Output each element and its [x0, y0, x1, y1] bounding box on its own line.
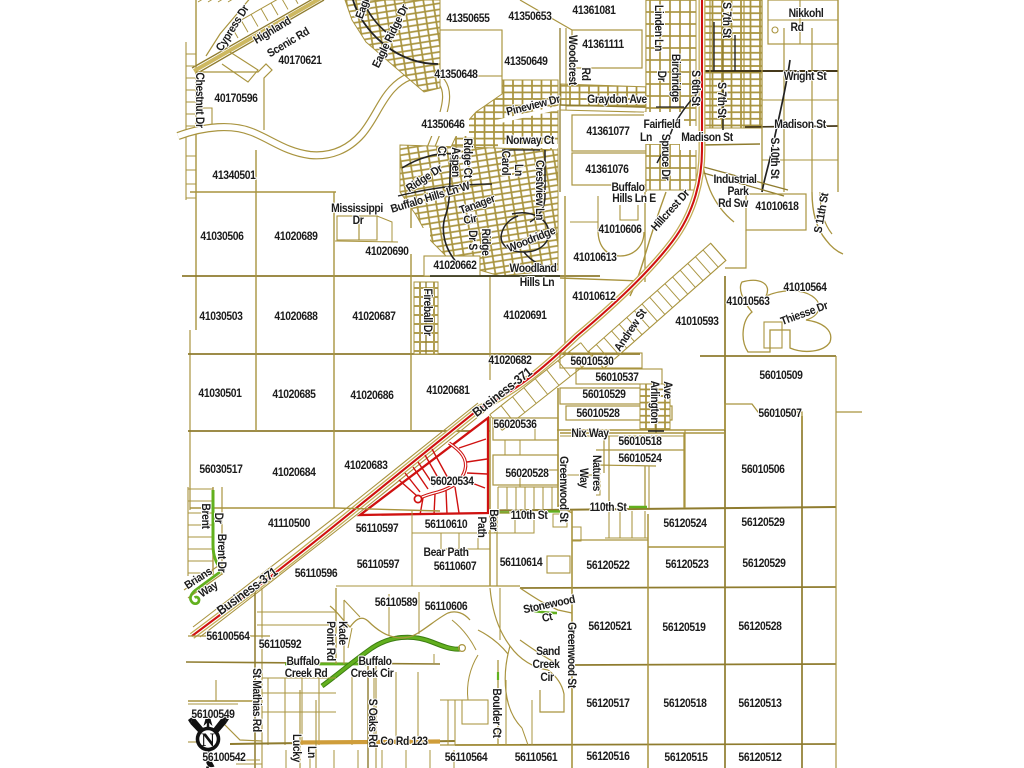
svg-text:56110561: 56110561: [515, 752, 558, 765]
svg-text:Rd: Rd: [790, 22, 803, 35]
svg-text:Park: Park: [727, 186, 749, 199]
svg-text:56110597: 56110597: [356, 523, 399, 536]
svg-text:Ln: Ln: [640, 132, 652, 145]
svg-text:Hills Ln E: Hills Ln E: [612, 193, 656, 206]
svg-text:41110500: 41110500: [268, 518, 310, 531]
svg-text:41010618: 41010618: [755, 201, 798, 214]
svg-text:Mississippi: Mississippi: [331, 203, 383, 216]
svg-text:56120515: 56120515: [664, 752, 707, 765]
svg-text:Creek: Creek: [533, 659, 561, 672]
svg-text:Hills Ln: Hills Ln: [520, 277, 555, 290]
svg-text:Buffalo: Buffalo: [286, 656, 320, 669]
svg-text:Ave: Ave: [661, 381, 674, 399]
svg-text:110th St: 110th St: [511, 510, 549, 523]
svg-text:41010613: 41010613: [573, 252, 616, 265]
svg-text:41350649: 41350649: [504, 56, 547, 69]
svg-text:41020686: 41020686: [350, 390, 393, 403]
svg-text:56110606: 56110606: [425, 601, 468, 614]
svg-text:56120517: 56120517: [586, 698, 629, 711]
svg-text:56120513: 56120513: [738, 698, 781, 711]
svg-text:56120522: 56120522: [586, 560, 629, 573]
svg-text:Carol: Carol: [499, 151, 512, 176]
svg-text:41030503: 41030503: [199, 311, 242, 324]
svg-text:56020528: 56020528: [505, 468, 548, 481]
svg-text:41020690: 41020690: [365, 246, 408, 259]
svg-text:56100564: 56100564: [206, 631, 250, 644]
svg-text:56010528: 56010528: [576, 408, 619, 421]
svg-text:41030506: 41030506: [200, 231, 243, 244]
svg-text:56020534: 56020534: [430, 476, 474, 489]
svg-text:Bear: Bear: [487, 509, 500, 532]
svg-text:Industrial: Industrial: [714, 174, 757, 187]
svg-text:41020681: 41020681: [426, 385, 469, 398]
svg-text:56100542: 56100542: [202, 752, 245, 765]
svg-text:41020688: 41020688: [274, 311, 317, 324]
svg-text:56110564: 56110564: [445, 752, 489, 765]
svg-text:41020685: 41020685: [272, 389, 315, 402]
svg-text:N: N: [201, 730, 215, 751]
svg-text:Dr: Dr: [212, 513, 225, 525]
svg-text:41010606: 41010606: [598, 224, 641, 237]
svg-text:56120528: 56120528: [738, 621, 781, 634]
svg-text:41010593: 41010593: [675, 316, 718, 329]
svg-text:S 7th St: S 7th St: [715, 82, 728, 118]
svg-text:Dr S: Dr S: [466, 230, 479, 250]
svg-text:S 7th St: S 7th St: [720, 2, 733, 38]
svg-text:Greenwood St: Greenwood St: [565, 622, 578, 689]
svg-text:Spruce Dr: Spruce Dr: [659, 134, 672, 181]
svg-text:41020689: 41020689: [274, 231, 317, 244]
svg-text:Ridge: Ridge: [479, 229, 492, 256]
svg-text:56120524: 56120524: [663, 518, 707, 531]
svg-text:41361076: 41361076: [585, 164, 628, 177]
svg-text:Sand: Sand: [536, 646, 560, 659]
svg-text:Wright St: Wright St: [784, 71, 827, 84]
svg-text:56120523: 56120523: [665, 559, 708, 572]
svg-text:56020536: 56020536: [493, 419, 536, 432]
svg-text:Madison St: Madison St: [774, 119, 826, 132]
svg-text:56110592: 56110592: [259, 639, 302, 652]
svg-text:40170621: 40170621: [278, 55, 321, 68]
svg-text:Dr: Dr: [655, 71, 668, 83]
svg-text:56120529: 56120529: [742, 558, 785, 571]
svg-text:56010506: 56010506: [741, 464, 784, 477]
svg-text:Way: Way: [577, 468, 590, 489]
svg-text:41010612: 41010612: [572, 291, 615, 304]
svg-text:Point Rd: Point Rd: [324, 621, 337, 661]
svg-text:41020684: 41020684: [272, 467, 316, 480]
svg-text:56120519: 56120519: [662, 622, 705, 635]
svg-text:56110597: 56110597: [357, 559, 400, 572]
svg-text:41350648: 41350648: [434, 69, 477, 82]
svg-text:56120521: 56120521: [588, 621, 631, 634]
svg-text:Cir: Cir: [540, 672, 554, 685]
svg-text:56010509: 56010509: [759, 370, 802, 383]
svg-text:41010563: 41010563: [726, 296, 769, 309]
svg-text:56100549: 56100549: [191, 709, 234, 722]
svg-text:Creek Rd: Creek Rd: [285, 668, 328, 681]
svg-text:Ln: Ln: [512, 164, 525, 176]
svg-text:41030501: 41030501: [198, 388, 241, 401]
svg-text:56110596: 56110596: [295, 568, 338, 581]
svg-text:41361111: 41361111: [582, 39, 624, 52]
svg-text:41361081: 41361081: [572, 5, 615, 18]
svg-text:Linden Ln: Linden Ln: [652, 5, 665, 51]
svg-text:Rd: Rd: [579, 67, 592, 80]
svg-text:56010537: 56010537: [595, 372, 638, 385]
svg-text:Co Rd 123: Co Rd 123: [380, 736, 428, 749]
svg-text:Dr: Dr: [353, 215, 365, 228]
svg-text:S 6th St: S 6th St: [689, 70, 702, 106]
svg-text:56030517: 56030517: [199, 464, 242, 477]
svg-text:41361077: 41361077: [586, 126, 629, 139]
svg-text:41020683: 41020683: [344, 460, 387, 473]
svg-text:41350646: 41350646: [421, 119, 464, 132]
svg-text:S Oaks Rd: S Oaks Rd: [366, 699, 379, 748]
svg-text:56110607: 56110607: [434, 561, 477, 574]
svg-text:Natures: Natures: [590, 455, 603, 491]
svg-text:41020662: 41020662: [433, 260, 476, 273]
svg-text:56110589: 56110589: [375, 597, 418, 610]
svg-text:Fairfield: Fairfield: [643, 119, 680, 132]
svg-text:Nix Way: Nix Way: [571, 428, 610, 441]
svg-text:41350655: 41350655: [446, 13, 489, 26]
svg-text:Woodcrest: Woodcrest: [566, 35, 579, 86]
svg-text:56120512: 56120512: [738, 752, 781, 765]
svg-text:Nikkohl: Nikkohl: [789, 8, 824, 21]
svg-text:Ct: Ct: [435, 146, 448, 157]
svg-text:Norway Ct: Norway Ct: [506, 135, 555, 148]
svg-text:56010529: 56010529: [582, 389, 625, 402]
svg-text:56120516: 56120516: [586, 751, 629, 764]
svg-text:Kade: Kade: [336, 621, 349, 645]
svg-text:Rd Sw: Rd Sw: [718, 198, 749, 211]
svg-text:41020687: 41020687: [352, 311, 395, 324]
svg-text:41350653: 41350653: [508, 11, 551, 24]
svg-text:Creek Cir: Creek Cir: [351, 668, 395, 681]
svg-text:56010507: 56010507: [758, 408, 801, 421]
svg-text:Arlington: Arlington: [648, 381, 661, 424]
svg-text:56010518: 56010518: [618, 436, 661, 449]
svg-text:Ridge Ct: Ridge Ct: [461, 138, 474, 178]
svg-text:41010564: 41010564: [783, 282, 827, 295]
svg-text:Lucky: Lucky: [290, 734, 303, 763]
svg-text:Madison St: Madison St: [681, 132, 733, 145]
svg-text:Bear Path: Bear Path: [423, 547, 468, 560]
svg-text:S 10th St: S 10th St: [768, 137, 781, 179]
svg-text:Brent: Brent: [199, 503, 212, 529]
svg-text:40170596: 40170596: [214, 93, 257, 106]
svg-text:Woodland: Woodland: [510, 263, 557, 276]
svg-text:56010530: 56010530: [570, 356, 613, 369]
svg-text:Fireball Dr: Fireball Dr: [421, 288, 434, 336]
svg-text:56120518: 56120518: [663, 698, 706, 711]
svg-text:Graydon Ave: Graydon Ave: [587, 94, 647, 107]
svg-text:41340501: 41340501: [212, 170, 255, 183]
svg-text:56120529: 56120529: [741, 517, 784, 530]
svg-text:56110614: 56110614: [500, 557, 544, 570]
svg-text:56110610: 56110610: [425, 519, 468, 532]
svg-text:Ln: Ln: [305, 746, 318, 758]
svg-text:Chestnut Dr: Chestnut Dr: [193, 72, 206, 128]
svg-text:Greenwood St: Greenwood St: [557, 456, 570, 523]
svg-text:Aspen: Aspen: [449, 147, 462, 177]
svg-text:56010524: 56010524: [618, 453, 662, 466]
svg-text:Path: Path: [475, 517, 488, 538]
svg-text:Buffalo: Buffalo: [358, 656, 392, 669]
svg-text:Birchridge: Birchridge: [669, 54, 682, 102]
svg-text:Crestview Ln: Crestview Ln: [533, 160, 546, 220]
svg-text:41020691: 41020691: [503, 310, 546, 323]
svg-text:Boulder Ct: Boulder Ct: [490, 688, 503, 738]
svg-text:Brent Dr: Brent Dr: [215, 534, 228, 574]
svg-text:St Mathias Rd: St Mathias Rd: [250, 668, 263, 732]
svg-text:110th St: 110th St: [590, 502, 628, 515]
